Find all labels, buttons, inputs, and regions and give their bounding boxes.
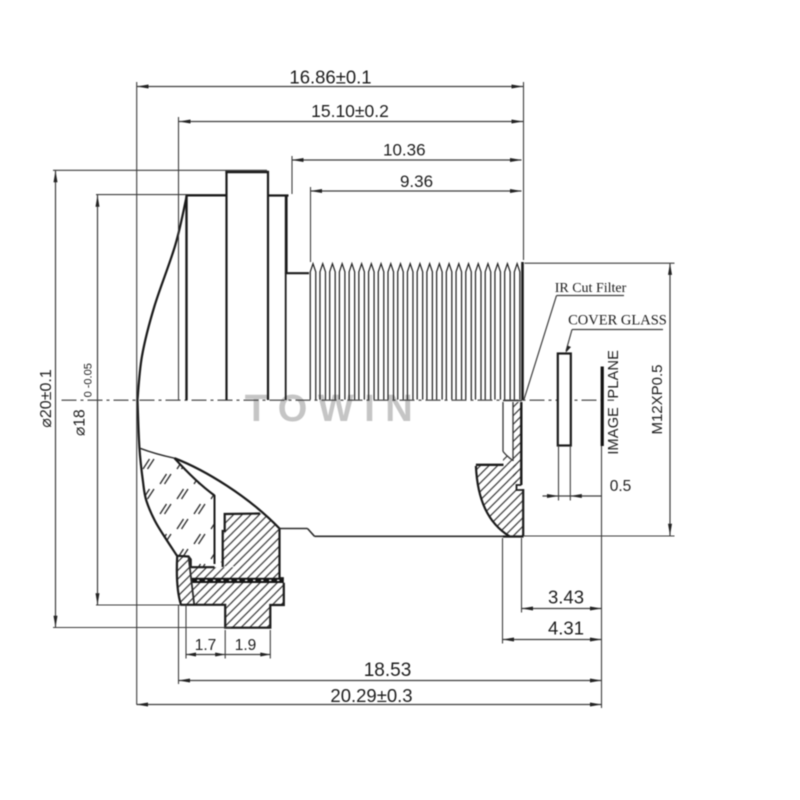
svg-text:9.36: 9.36: [400, 172, 433, 191]
svg-text:3.43: 3.43: [548, 587, 584, 608]
svg-text:IMAGE PLANE: IMAGE PLANE: [606, 350, 622, 455]
svg-text:0.5: 0.5: [610, 478, 632, 495]
svg-text:16.86±0.1: 16.86±0.1: [289, 67, 371, 88]
svg-text:4.31: 4.31: [548, 618, 584, 639]
svg-text:1.7: 1.7: [195, 637, 217, 654]
svg-text:18.53: 18.53: [364, 660, 412, 681]
svg-text:15.10±0.2: 15.10±0.2: [311, 101, 389, 121]
svg-text:COVER GLASS: COVER GLASS: [568, 313, 667, 329]
svg-text:20.29±0.3: 20.29±0.3: [330, 685, 412, 706]
svg-text:M12XP0.5: M12XP0.5: [649, 364, 666, 434]
svg-text:TOWIN: TOWIN: [245, 388, 423, 430]
svg-text:IR Cut Filter: IR Cut Filter: [555, 281, 627, 296]
svg-text:⌀20±0.1: ⌀20±0.1: [38, 369, 55, 428]
svg-text:1.9: 1.9: [235, 637, 257, 654]
svg-text:10.36: 10.36: [383, 141, 426, 160]
